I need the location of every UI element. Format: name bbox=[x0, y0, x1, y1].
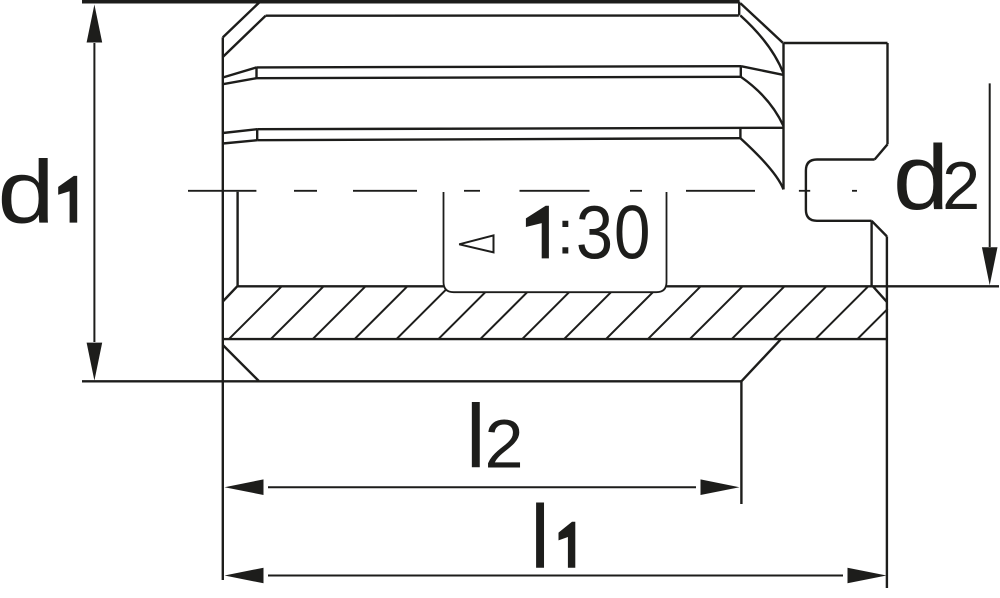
svg-text:l: l bbox=[466, 387, 486, 488]
svg-text:2: 2 bbox=[942, 148, 980, 224]
svg-text:l: l bbox=[530, 487, 550, 588]
svg-text:3: 3 bbox=[576, 192, 613, 275]
svg-text::: : bbox=[557, 199, 574, 268]
svg-text:d: d bbox=[0, 142, 55, 241]
svg-text:0: 0 bbox=[614, 191, 650, 276]
svg-text:d: d bbox=[893, 127, 949, 229]
svg-text:2: 2 bbox=[485, 406, 524, 483]
